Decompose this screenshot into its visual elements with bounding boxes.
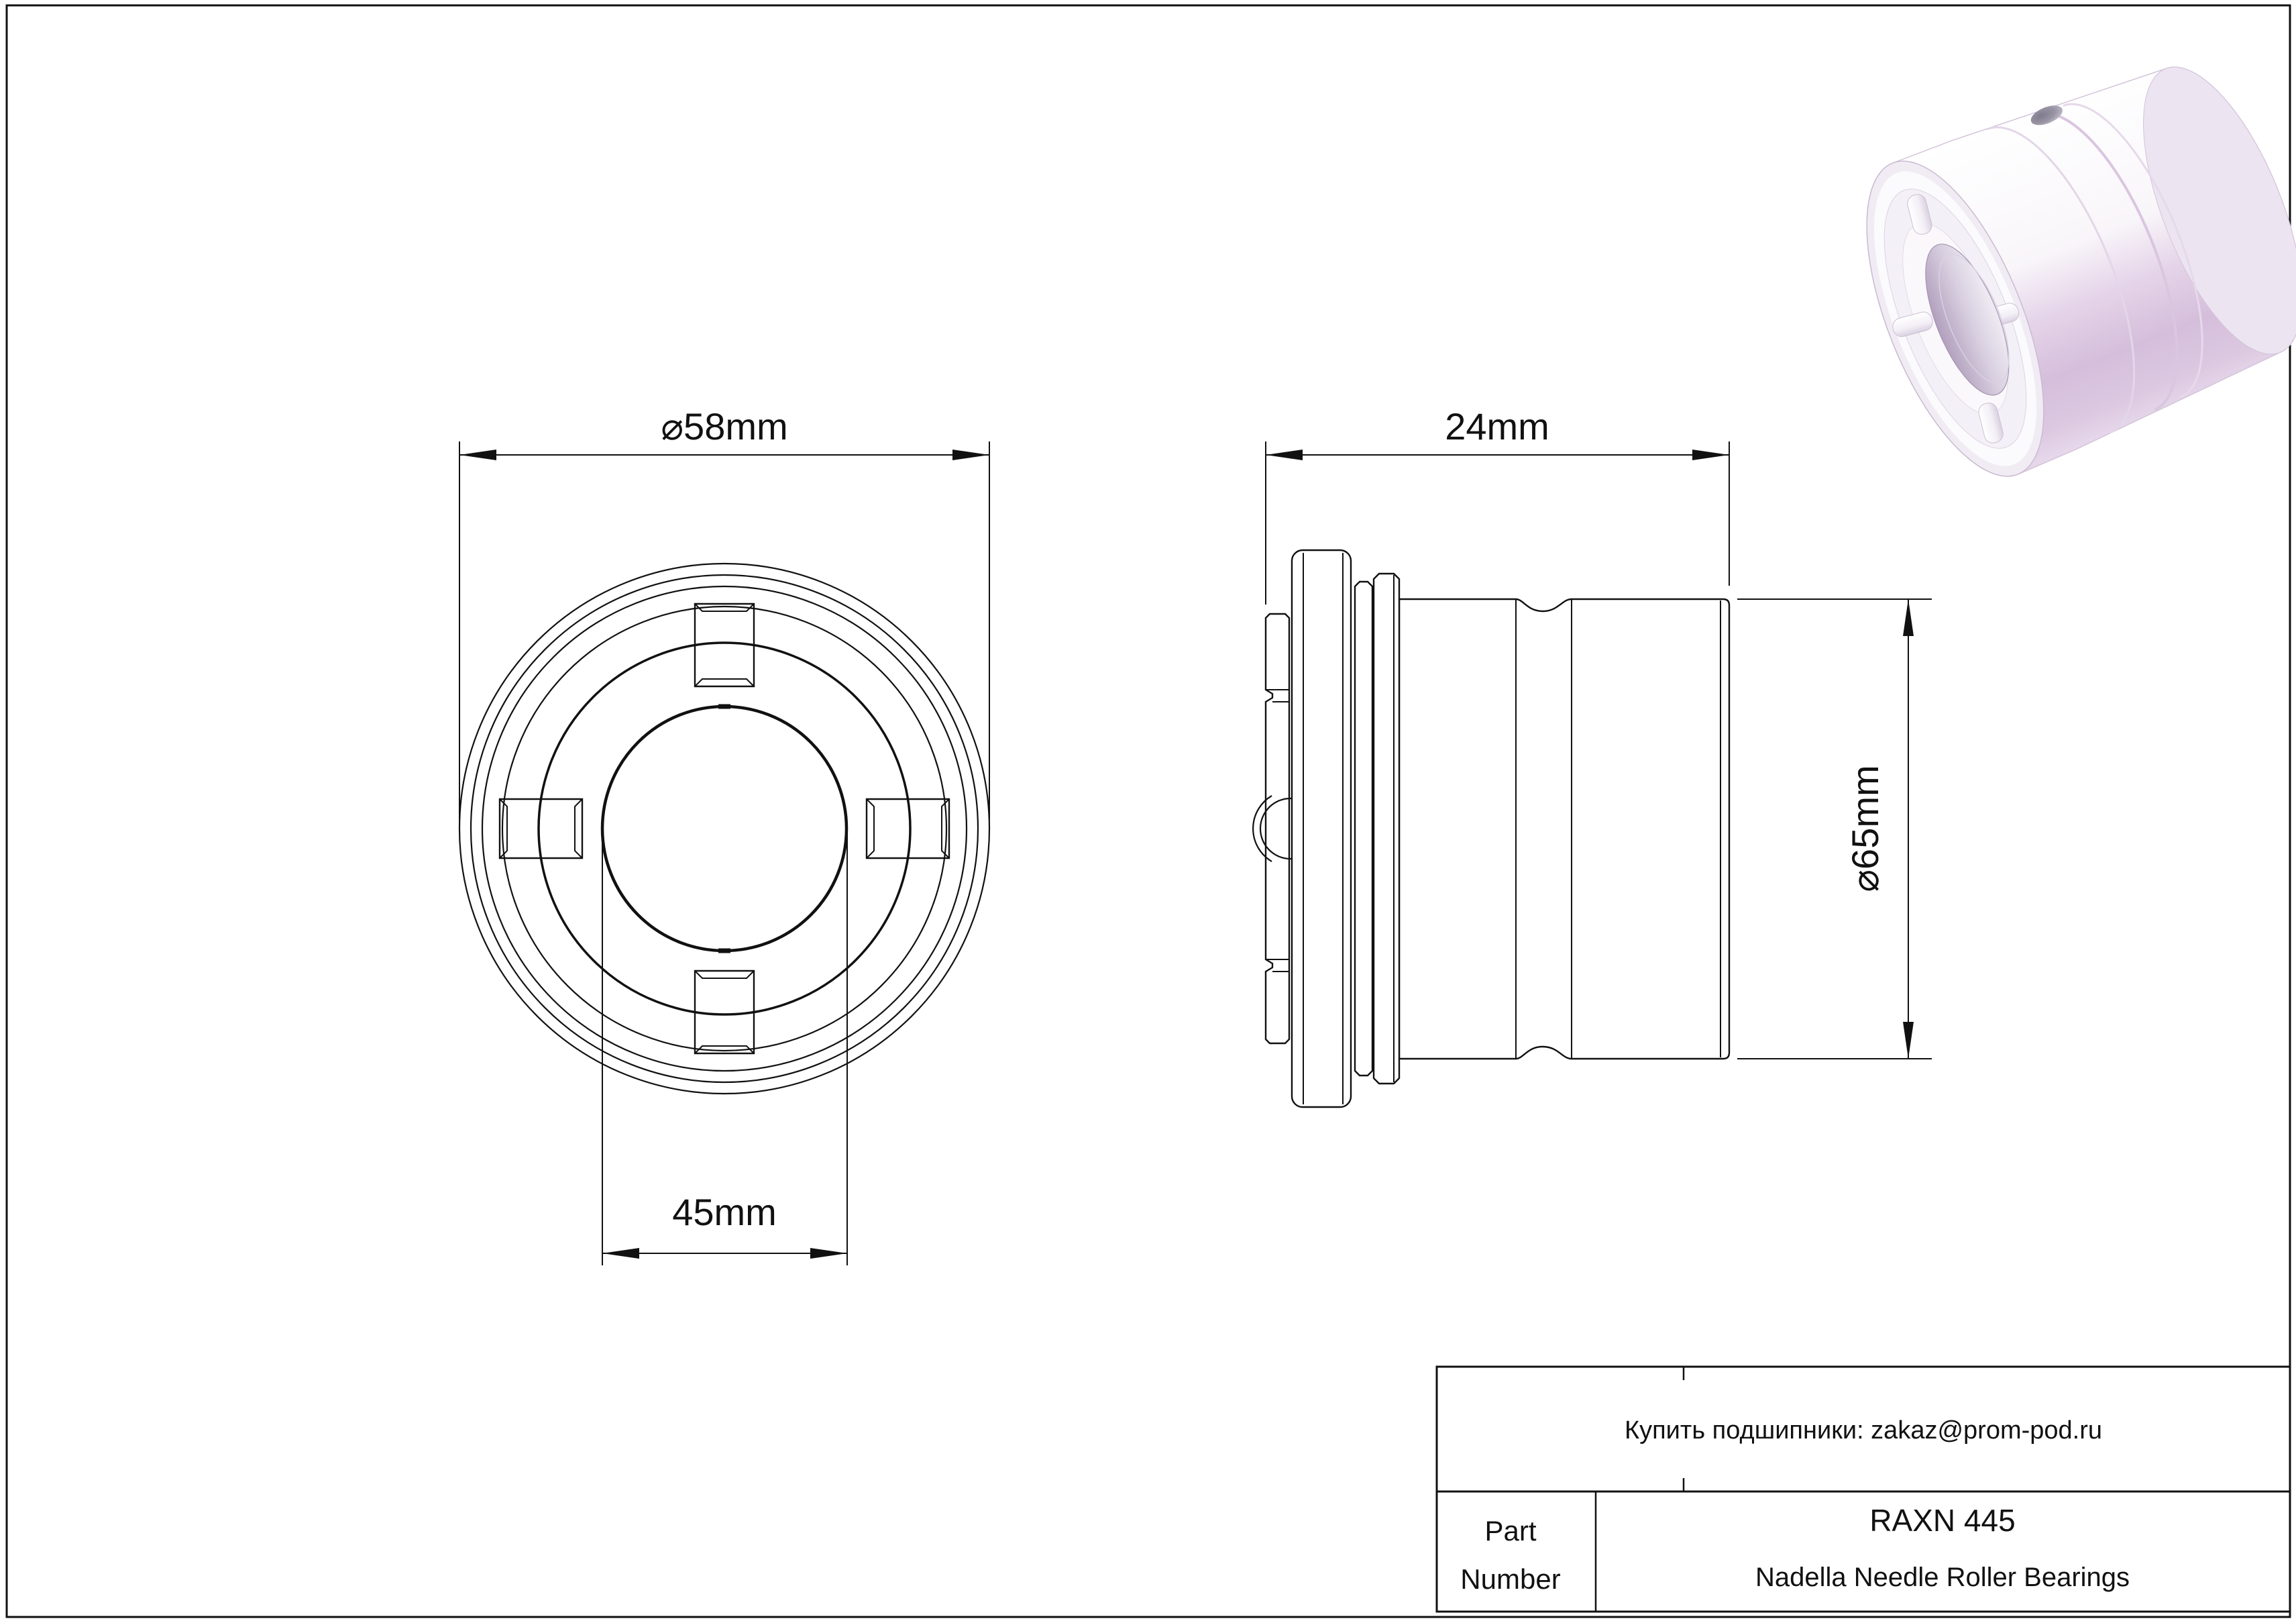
drawing-sheet: ⌀58mm 45mm — [0, 0, 2296, 1623]
side-width-label: 24mm — [1445, 405, 1549, 448]
side-body-outline — [1399, 599, 1729, 1059]
part-number-value: RAXN 445 — [1869, 1503, 2015, 1538]
front-lug-top — [695, 604, 754, 686]
front-dim-outer-diameter — [459, 441, 989, 820]
dim-arrow-down-icon — [1903, 1022, 1914, 1059]
title-block: Купить подшипники: zakaz@prom-pod.ru Par… — [1437, 1367, 2290, 1612]
side-outer-diameter-label: ⌀65mm — [1844, 765, 1886, 892]
part-series-name: Nadella Needle Roller Bearings — [1755, 1563, 2130, 1592]
side-step-ring-2 — [1374, 574, 1399, 1084]
front-bore-label: 45mm — [672, 1191, 777, 1233]
side-view: 24mm ⌀65mm — [1253, 405, 1932, 1107]
bearing-3d-render — [1830, 33, 2296, 499]
part-number-label-line2: Number — [1460, 1563, 1560, 1595]
side-flange — [1292, 550, 1351, 1107]
front-lug-bottom — [695, 971, 754, 1053]
front-outer-diameter-label: ⌀58mm — [661, 405, 787, 448]
dim-arrow-left-icon — [1266, 450, 1303, 460]
dim-arrow-right-icon — [952, 450, 989, 460]
part-number-label-line1: Part — [1484, 1515, 1536, 1547]
dim-arrow-right-icon — [810, 1248, 847, 1259]
dim-arrow-left-icon — [602, 1248, 639, 1259]
front-ring-circle — [502, 607, 946, 1051]
dim-arrow-right-icon — [1692, 450, 1729, 460]
title-block-contact-note: Купить подшипники: zakaz@prom-pod.ru — [1625, 1416, 2102, 1445]
front-view: ⌀58mm 45mm — [459, 405, 989, 1265]
side-step-ring-1 — [1355, 582, 1372, 1076]
front-outer-circle-2 — [471, 575, 978, 1082]
dim-arrow-left-icon — [459, 450, 496, 460]
front-lug-left — [500, 799, 582, 858]
front-race-circle — [539, 643, 910, 1014]
front-bore-circle — [602, 706, 846, 951]
side-washer-edge — [1266, 614, 1289, 1043]
side-dim-outer-diameter — [1737, 599, 1932, 1059]
dim-arrow-up-icon — [1903, 599, 1914, 636]
front-outer-circle-3 — [482, 586, 967, 1071]
front-lug-right — [867, 799, 949, 858]
